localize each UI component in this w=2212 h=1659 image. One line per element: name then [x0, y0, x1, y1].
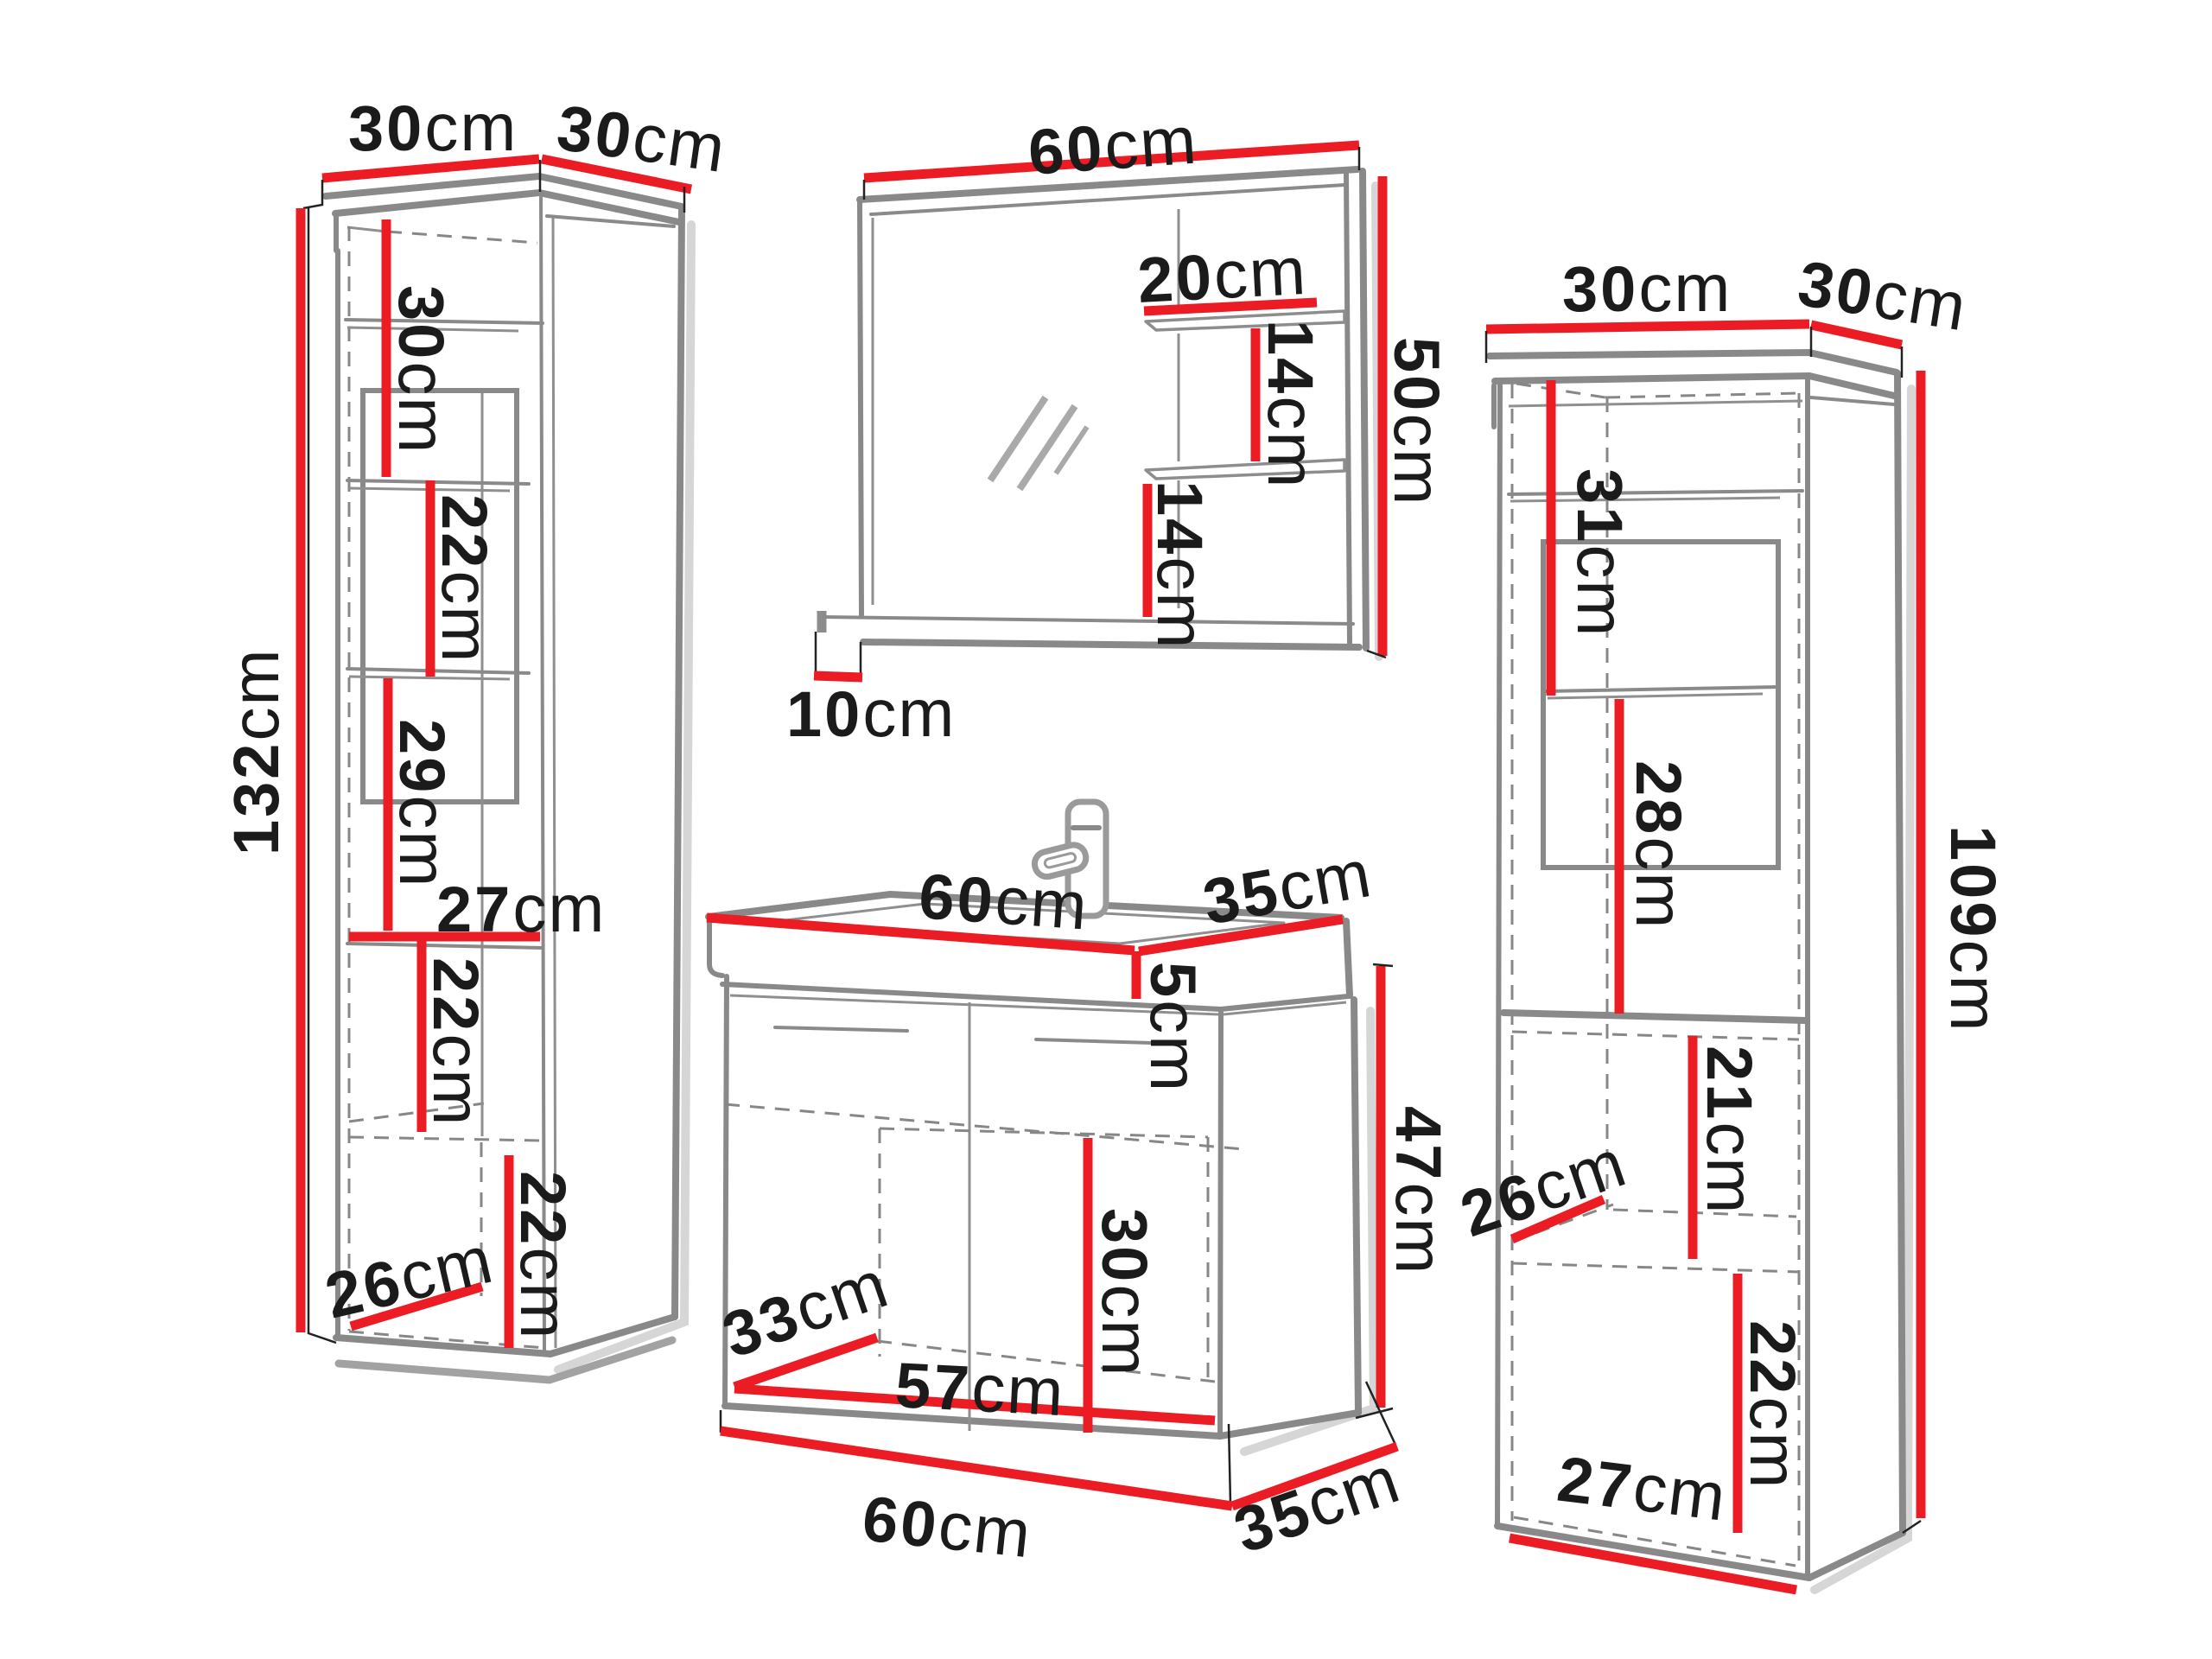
svg-text:21cm: 21cm	[1693, 1046, 1769, 1215]
svg-text:132cm: 132cm	[217, 648, 293, 855]
svg-text:22cm: 22cm	[506, 1171, 582, 1340]
svg-text:27cm: 27cm	[436, 870, 606, 946]
svg-text:28cm: 28cm	[1622, 760, 1698, 930]
svg-text:10cm: 10cm	[786, 675, 956, 751]
svg-text:30cm: 30cm	[1088, 1208, 1164, 1377]
svg-text:30cm: 30cm	[385, 285, 461, 454]
svg-text:50cm: 50cm	[1380, 337, 1456, 506]
svg-text:60cm: 60cm	[917, 856, 1091, 944]
svg-text:22cm: 22cm	[428, 494, 504, 664]
svg-text:60cm: 60cm	[1026, 101, 1200, 188]
svg-text:57cm: 57cm	[893, 1345, 1067, 1430]
svg-text:14cm: 14cm	[1254, 320, 1330, 489]
svg-text:29cm: 29cm	[385, 719, 461, 888]
svg-text:30cm: 30cm	[348, 89, 518, 165]
svg-text:109cm: 109cm	[1936, 825, 2012, 1033]
svg-text:31cm: 31cm	[1563, 468, 1639, 638]
svg-text:47cm: 47cm	[1382, 1106, 1458, 1275]
svg-text:30cm: 30cm	[1562, 250, 1732, 326]
svg-text:22cm: 22cm	[1736, 1320, 1812, 1490]
svg-text:5cm: 5cm	[1136, 962, 1212, 1093]
svg-text:20cm: 20cm	[1135, 232, 1309, 317]
svg-text:14cm: 14cm	[1143, 480, 1219, 650]
svg-text:22cm: 22cm	[419, 957, 495, 1127]
